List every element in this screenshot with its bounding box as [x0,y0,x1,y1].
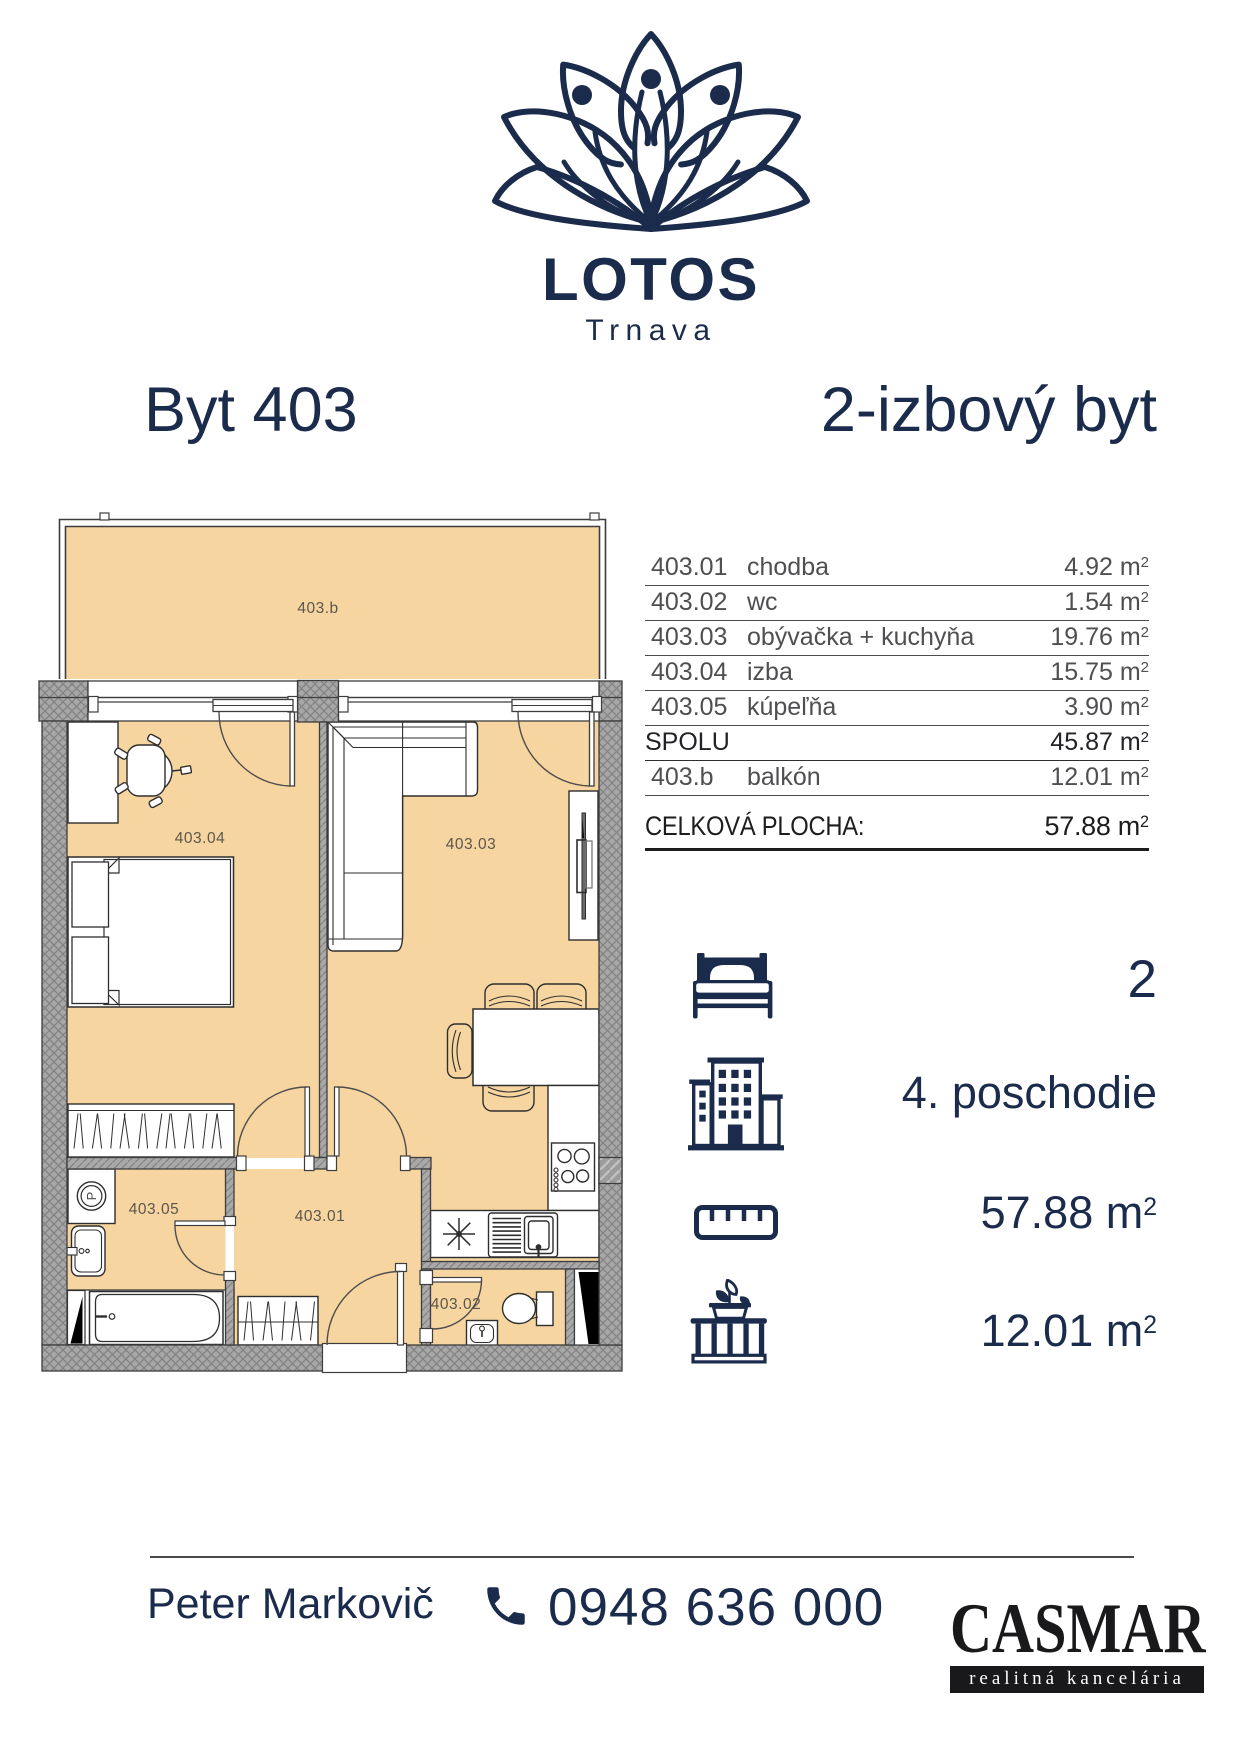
svg-text:P: P [84,1192,99,1201]
svg-text:Trnava: Trnava [585,314,716,347]
svg-text:403.b: 403.b [297,600,338,617]
svg-text:403.02: 403.02 [431,1296,481,1313]
svg-text:403.03: 403.03 [446,836,496,853]
svg-text:403.01: 403.01 [295,1208,345,1225]
svg-text:403.04: 403.04 [175,830,225,847]
svg-text:LOTOS: LOTOS [542,246,760,313]
svg-text:403.05: 403.05 [129,1201,179,1218]
